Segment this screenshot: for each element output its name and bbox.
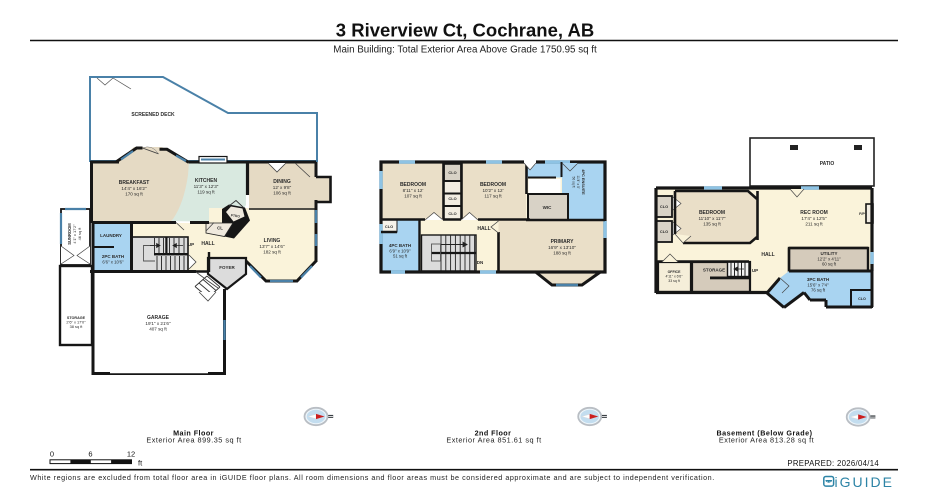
- svg-text:HALL: HALL: [201, 241, 214, 247]
- svg-text:56 sq ft: 56 sq ft: [572, 176, 576, 187]
- svg-text:211 sq ft: 211 sq ft: [805, 222, 823, 227]
- svg-text:11'4" x 5': 11'4" x 5': [576, 175, 580, 189]
- svg-text:6: 6: [88, 450, 92, 459]
- svg-text:CLO: CLO: [858, 297, 866, 301]
- svg-text:STORAGE: STORAGE: [703, 268, 725, 273]
- svg-text:Main Building: Total Exterior: Main Building: Total Exterior Area Above…: [333, 45, 597, 56]
- svg-text:UP: UP: [188, 242, 194, 247]
- svg-text:HALL: HALL: [477, 226, 490, 232]
- svg-text:CLO: CLO: [448, 170, 456, 175]
- svg-text:10'2" x 12': 10'2" x 12': [482, 188, 503, 193]
- svg-text:3 Riverview Ct, Cochrane, AB: 3 Riverview Ct, Cochrane, AB: [336, 20, 594, 41]
- svg-text:6'6" x 10'6": 6'6" x 10'6": [102, 260, 124, 265]
- svg-text:0: 0: [50, 450, 54, 459]
- svg-text:11'3" x 12'3": 11'3" x 12'3": [194, 184, 219, 189]
- svg-text:CLO: CLO: [660, 229, 668, 234]
- svg-text:UP: UP: [752, 268, 758, 273]
- svg-text:106 sq ft: 106 sq ft: [273, 191, 291, 196]
- svg-text:3PC BATH: 3PC BATH: [807, 277, 829, 282]
- svg-text:46 sq ft: 46 sq ft: [77, 227, 82, 241]
- svg-text:CLO: CLO: [448, 211, 456, 216]
- svg-text:iGUIDE: iGUIDE: [835, 474, 894, 490]
- svg-text:135 sq ft: 135 sq ft: [703, 222, 721, 227]
- svg-text:WIC: WIC: [543, 205, 552, 210]
- svg-text:182 sq ft: 182 sq ft: [263, 250, 281, 255]
- svg-text:117 sq ft: 117 sq ft: [484, 194, 502, 199]
- svg-text:14'4" x 16'2": 14'4" x 16'2": [121, 186, 147, 191]
- svg-text:188 sq ft: 188 sq ft: [553, 251, 571, 256]
- svg-text:17'4" x 12'5": 17'4" x 12'5": [801, 216, 827, 221]
- svg-text:51 sq ft: 51 sq ft: [393, 254, 408, 259]
- svg-text:119 sq ft: 119 sq ft: [197, 190, 215, 195]
- svg-text:LAUNDRY: LAUNDRY: [100, 233, 122, 238]
- svg-text:107 sq ft: 107 sq ft: [404, 194, 422, 199]
- svg-text:White regions are excluded fro: White regions are excluded from total fl…: [30, 473, 715, 482]
- svg-text:UTILITY: UTILITY: [821, 251, 838, 256]
- svg-text:8'11" x 12': 8'11" x 12': [403, 188, 424, 193]
- svg-text:2PC BATH: 2PC BATH: [102, 254, 124, 259]
- svg-text:407 sq ft: 407 sq ft: [149, 327, 167, 332]
- svg-text:F/P: F/P: [859, 212, 865, 216]
- svg-text:4'11" x 6'6": 4'11" x 6'6": [666, 275, 684, 279]
- svg-text:76 sq ft: 76 sq ft: [811, 288, 826, 293]
- svg-text:12: 12: [127, 450, 135, 459]
- svg-text:33 sq ft: 33 sq ft: [668, 279, 680, 283]
- svg-text:CL: CL: [217, 226, 223, 231]
- svg-text:PATIO: PATIO: [820, 161, 835, 167]
- svg-text:4PC BATH: 4PC BATH: [389, 243, 411, 248]
- svg-text:HALL: HALL: [761, 252, 774, 258]
- svg-text:38 sq ft: 38 sq ft: [70, 324, 84, 329]
- svg-text:Exterior Area 813.28 sq ft: Exterior Area 813.28 sq ft: [719, 436, 814, 445]
- svg-text:12' x 9'8": 12' x 9'8": [273, 185, 292, 190]
- svg-text:170 sq ft: 170 sq ft: [125, 192, 143, 197]
- svg-text:FOYER: FOYER: [219, 265, 235, 270]
- svg-text:19'1" x 21'6": 19'1" x 21'6": [145, 321, 171, 326]
- svg-text:CLO: CLO: [660, 204, 668, 209]
- svg-text:DN: DN: [477, 260, 484, 265]
- svg-text:11'10" x 11'7": 11'10" x 11'7": [698, 216, 725, 221]
- svg-text:13'7" x 14'6": 13'7" x 14'6": [259, 244, 285, 249]
- svg-text:Exterior Area 899.35 sq ft: Exterior Area 899.35 sq ft: [146, 436, 241, 445]
- svg-text:16'9" x 13'10": 16'9" x 13'10": [548, 245, 576, 250]
- svg-text:PREPARED: 2026/04/14: PREPARED: 2026/04/14: [787, 459, 879, 468]
- svg-text:4PC ENSUITE: 4PC ENSUITE: [581, 169, 586, 195]
- svg-text:CLO: CLO: [448, 196, 456, 201]
- svg-text:SCREENED DECK: SCREENED DECK: [131, 112, 175, 118]
- svg-text:60 sq ft: 60 sq ft: [822, 262, 837, 267]
- svg-text:CLO: CLO: [385, 224, 393, 229]
- svg-text:OFFICE: OFFICE: [668, 270, 681, 274]
- svg-text:Exterior Area 851.61 sq ft: Exterior Area 851.61 sq ft: [446, 436, 541, 445]
